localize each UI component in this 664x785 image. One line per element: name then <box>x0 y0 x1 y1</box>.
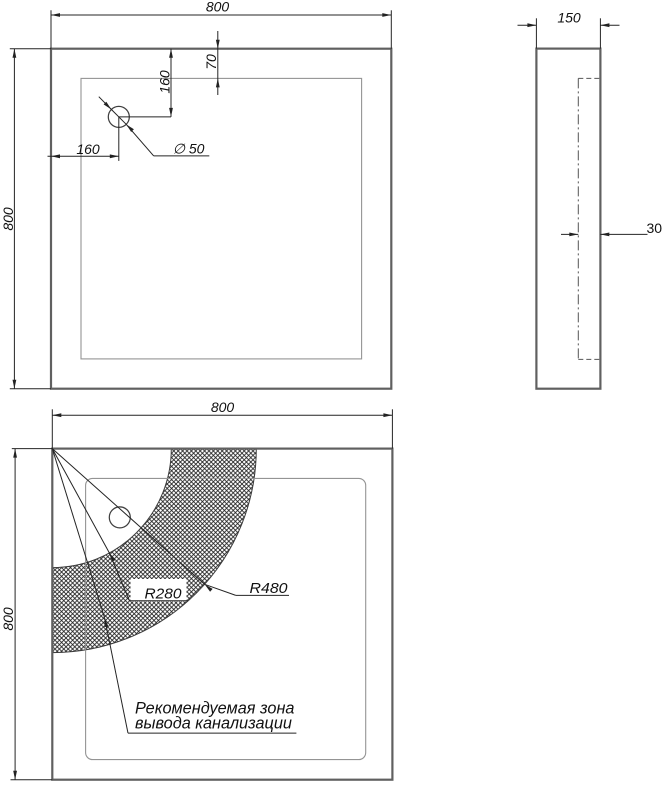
svg-text:800: 800 <box>0 607 16 631</box>
svg-text:∅ 50: ∅ 50 <box>173 141 205 157</box>
svg-text:800: 800 <box>211 399 235 415</box>
svg-text:800: 800 <box>206 0 230 14</box>
svg-text:R280: R280 <box>145 585 183 602</box>
svg-text:160: 160 <box>76 141 100 157</box>
svg-text:70: 70 <box>203 54 219 70</box>
svg-text:800: 800 <box>0 207 16 231</box>
svg-text:150: 150 <box>557 10 581 26</box>
svg-text:160: 160 <box>157 70 173 94</box>
svg-text:30: 30 <box>647 220 663 236</box>
svg-text:вывода канализации: вывода канализации <box>135 713 293 732</box>
svg-text:R480: R480 <box>250 580 289 597</box>
